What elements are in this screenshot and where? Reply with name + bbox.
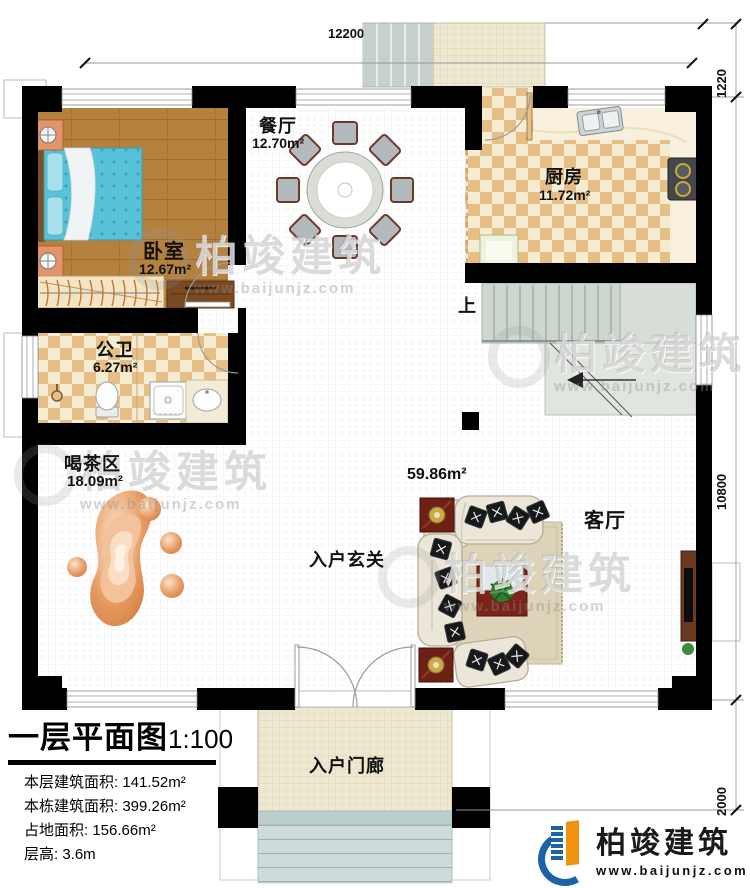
- dimension-top-width: 12200: [328, 26, 364, 41]
- stairs-up-label: 上: [458, 297, 477, 316]
- bedroom-door-leaf: [185, 302, 230, 307]
- wardrobe: [36, 276, 164, 308]
- kitchen-cabinet: [480, 235, 518, 266]
- bed: [36, 146, 142, 242]
- room-area-dining: 12.70m²: [252, 136, 304, 151]
- logo-building-blue: [551, 826, 563, 862]
- coffee-table: [477, 566, 527, 616]
- room-label-living: 客厅: [584, 511, 626, 532]
- room-label-bathroom: 公卫: [96, 341, 134, 360]
- room-label-foyer: 入户玄关: [309, 551, 385, 570]
- dimension-right-top: 1220: [714, 34, 729, 98]
- plant: [682, 643, 694, 655]
- info-floor-height: 层高: 3.6m: [8, 843, 238, 867]
- exterior-side-steps: [363, 23, 433, 87]
- kitchen-stove: [668, 158, 698, 200]
- title-underline: [8, 760, 216, 765]
- info-building-area: 本栋建筑面积: 399.26m²: [8, 795, 238, 819]
- entry-door-leaf: [411, 645, 415, 707]
- bathroom-sink: [186, 380, 228, 423]
- room-area-bedroom: 12.67m²: [139, 262, 191, 277]
- title-block: 一层平面图 1:100 本层建筑面积: 141.52m² 本栋建筑面积: 399…: [8, 712, 238, 867]
- drawing-title: 一层平面图: [8, 712, 168, 757]
- company-logo-icon: [538, 818, 588, 878]
- side-table: [420, 498, 454, 532]
- room-label-kitchen: 厨房: [545, 168, 583, 187]
- dimension-right-side: 10800: [714, 415, 729, 510]
- side-table: [419, 648, 453, 682]
- room-area-living: 59.86m²: [407, 467, 467, 484]
- company-logo: 柏竣建筑 www.baijunjz.com: [538, 818, 748, 878]
- room-area-tea-area: 18.09m²: [67, 474, 123, 490]
- company-website: www.baijunjz.com: [596, 863, 748, 878]
- room-area-bathroom: 6.27m²: [93, 360, 137, 375]
- room-label-tea-area: 喝茶区: [64, 455, 121, 474]
- room-label-bedroom: 卧室: [143, 242, 185, 263]
- info-floor-area: 本层建筑面积: 141.52m²: [8, 771, 238, 795]
- entry-porch-structure: [220, 707, 490, 883]
- tv-cabinet: [681, 551, 698, 655]
- dimension-right-bottom: 2000: [714, 736, 729, 816]
- logo-building-orange: [566, 820, 579, 866]
- exterior-patio: [433, 23, 545, 87]
- entry-door-leaf: [295, 645, 299, 707]
- toilet: [96, 382, 118, 417]
- floorplan-canvas: 柏竣建筑 www.baijunjz.com 柏竣建筑 www.baijunjz.…: [0, 0, 750, 888]
- room-label-porch: 入户门廊: [309, 757, 385, 776]
- drawing-scale: 1:100: [168, 724, 233, 755]
- company-name: 柏竣建筑: [596, 818, 748, 862]
- info-footprint: 占地面积: 156.66m²: [8, 819, 238, 843]
- porch-pillar: [452, 787, 490, 828]
- room-area-kitchen: 11.72m²: [539, 188, 590, 203]
- room-label-dining: 餐厅: [259, 117, 297, 136]
- shower: [150, 382, 187, 419]
